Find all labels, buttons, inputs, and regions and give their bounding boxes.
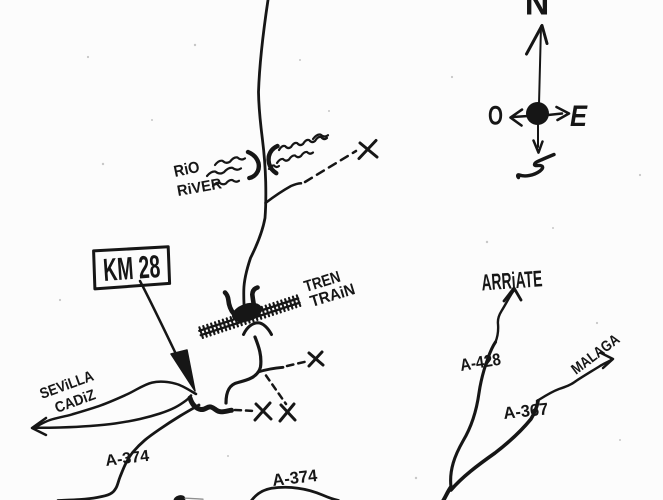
svg-text:ARRiATE: ARRiATE xyxy=(481,265,544,295)
svg-text:O: O xyxy=(488,101,503,131)
svg-text:N: N xyxy=(525,0,550,23)
svg-text:KM 28: KM 28 xyxy=(102,248,161,288)
svg-text:E: E xyxy=(570,100,588,133)
